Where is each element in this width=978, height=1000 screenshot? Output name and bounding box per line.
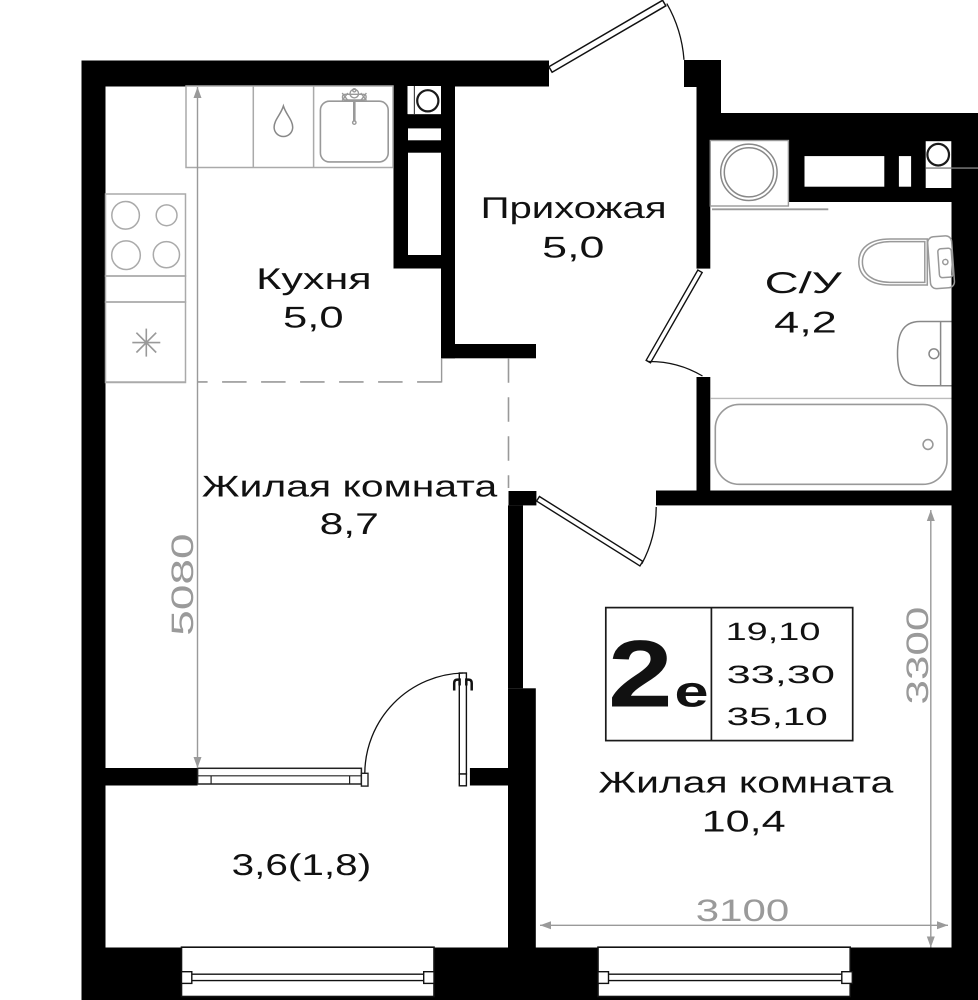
svg-text:33,30: 33,30: [727, 661, 835, 689]
svg-text:С/У: С/У: [765, 267, 844, 300]
svg-text:35,10: 35,10: [727, 703, 828, 731]
svg-text:5,0: 5,0: [283, 302, 344, 335]
svg-text:4,2: 4,2: [774, 307, 837, 340]
svg-text:3300: 3300: [900, 607, 935, 705]
svg-text:Жилая комната: Жилая комната: [598, 767, 893, 800]
svg-text:10,4: 10,4: [702, 806, 786, 839]
svg-text:8,7: 8,7: [320, 508, 379, 541]
svg-text:19,10: 19,10: [726, 618, 821, 646]
svg-text:Прихожая: Прихожая: [481, 192, 667, 225]
svg-text:2: 2: [608, 622, 673, 728]
svg-text:е: е: [675, 668, 709, 717]
svg-text:5080: 5080: [165, 533, 200, 635]
svg-text:Кухня: Кухня: [256, 263, 372, 296]
svg-text:5,0: 5,0: [542, 232, 604, 265]
svg-text:Жилая комната: Жилая комната: [202, 470, 498, 503]
svg-text:3100: 3100: [696, 893, 790, 928]
svg-text:3,6(1,8): 3,6(1,8): [232, 849, 372, 882]
